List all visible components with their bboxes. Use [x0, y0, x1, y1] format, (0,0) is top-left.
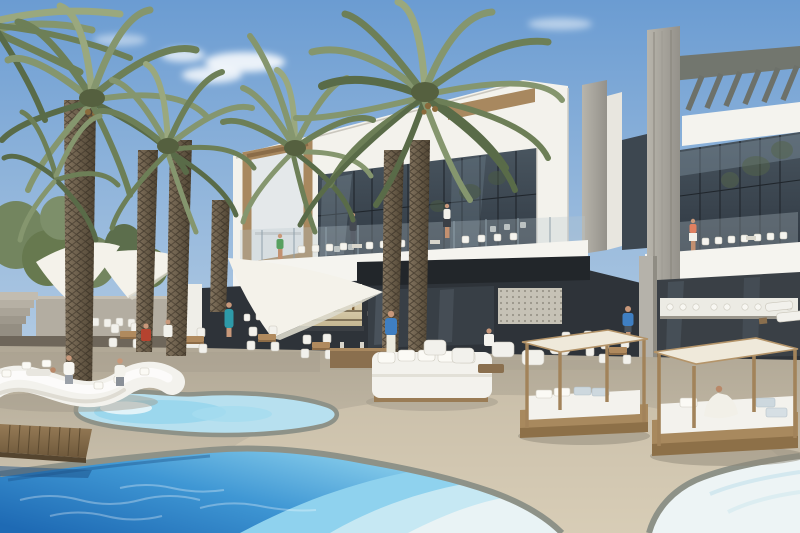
timber-deck-platform: [0, 424, 92, 478]
walkway-shadow: [0, 336, 186, 348]
daybed-island: [366, 350, 498, 411]
white-fin: [607, 92, 622, 250]
beach-club-rendering: [0, 0, 800, 533]
rendering-image: [0, 0, 800, 533]
gap-glazing: [622, 134, 647, 250]
concrete-pylon: [582, 80, 607, 254]
concrete-pylon-tall: [647, 26, 680, 286]
